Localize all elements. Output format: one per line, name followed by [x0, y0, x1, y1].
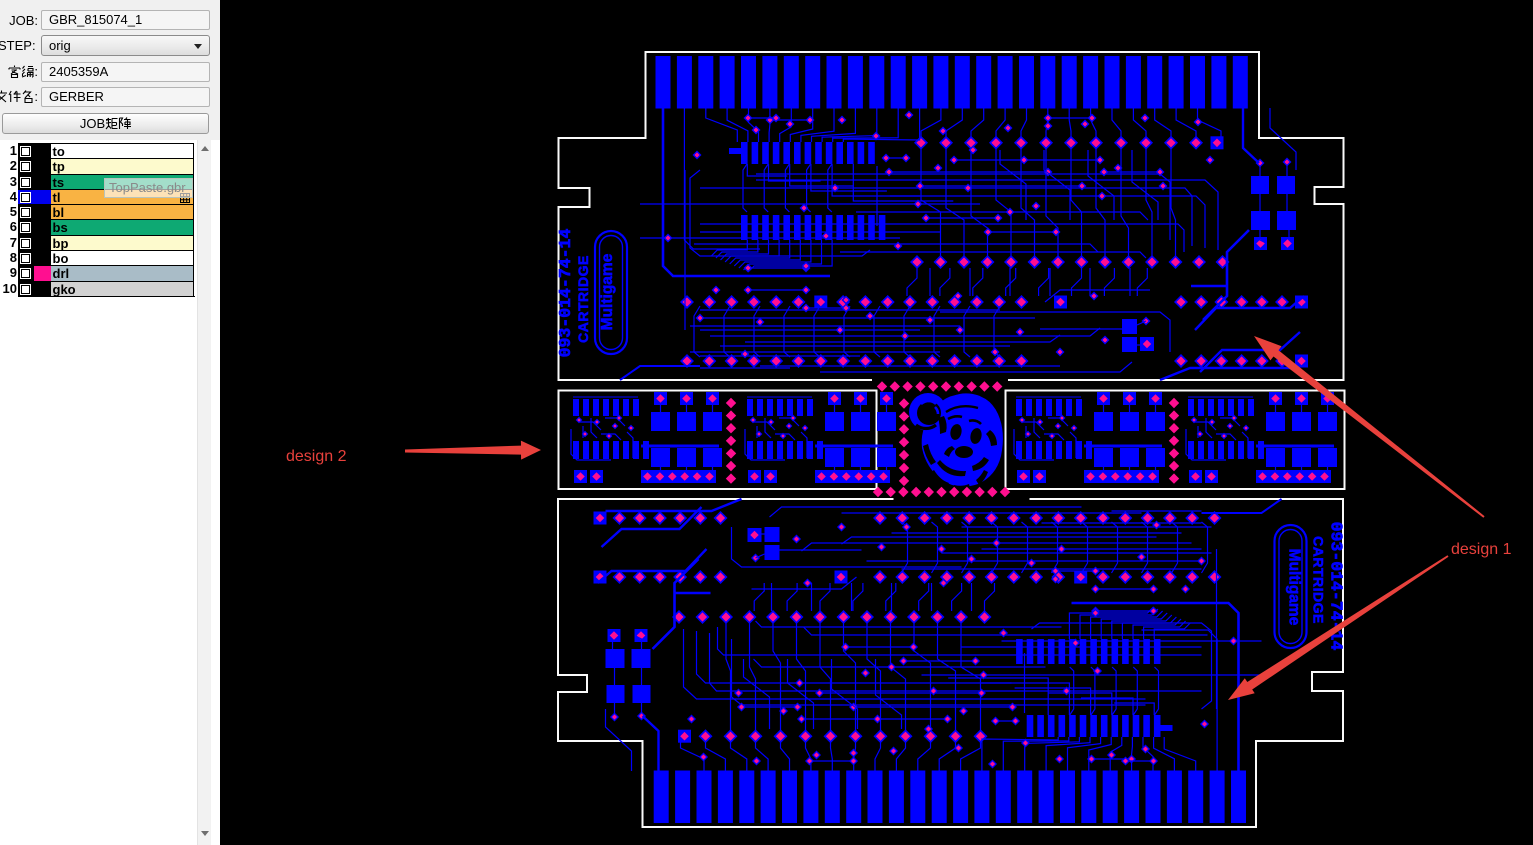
- svg-text:design 2: design 2: [286, 448, 347, 465]
- svg-text:design 1: design 1: [1451, 541, 1512, 558]
